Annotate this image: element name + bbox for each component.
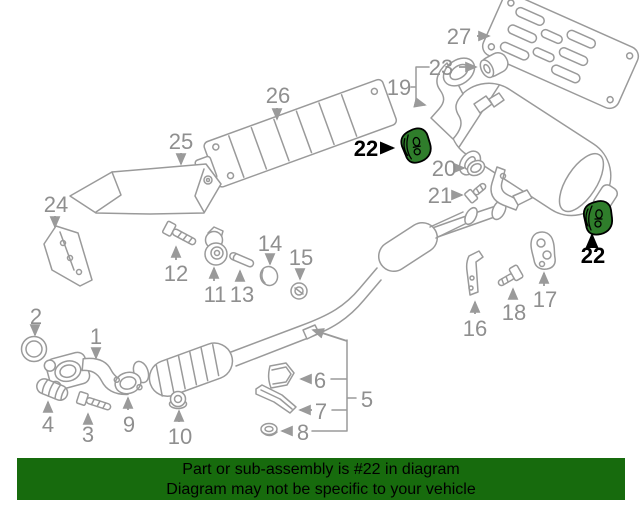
callout-16: 16 — [463, 316, 487, 341]
callout-19: 19 — [387, 75, 411, 100]
pin-13 — [229, 252, 255, 268]
callout-6: 6 — [314, 368, 326, 393]
grommet-15 — [291, 283, 307, 299]
callout-9: 9 — [123, 412, 135, 437]
nut-10 — [170, 392, 187, 409]
parts-diagram-page: 1234567891011121314151617181920212222232… — [0, 0, 640, 512]
callout-22-left: 22 — [354, 136, 378, 161]
callout-18: 18 — [502, 300, 526, 325]
callout-17: 17 — [533, 287, 557, 312]
callout-2: 2 — [30, 304, 42, 329]
bolt-12 — [162, 221, 198, 248]
callout-24: 24 — [44, 192, 68, 217]
callout-4: 4 — [42, 412, 54, 437]
callout-26: 26 — [266, 83, 290, 108]
callout-12: 12 — [164, 261, 188, 286]
callout-22-right: 22 — [581, 243, 605, 268]
callout-21: 21 — [428, 183, 452, 208]
bolt-18 — [495, 265, 524, 290]
heat-shield-24 — [44, 226, 92, 286]
bracket-16 — [467, 251, 483, 295]
callout-10: 10 — [168, 424, 192, 449]
callout-5: 5 — [361, 387, 373, 412]
highlight-banner: Part or sub-assembly is #22 in diagram D… — [17, 458, 625, 500]
rubber-hanger-22-left — [399, 127, 433, 165]
bolt-3 — [76, 391, 112, 413]
grommet-8 — [261, 424, 277, 436]
callout-23: 23 — [429, 55, 453, 80]
grommet-14 — [258, 265, 279, 288]
catalytic-converter — [144, 338, 237, 401]
banner-line1: Part or sub-assembly is #22 in diagram — [17, 460, 625, 480]
banner-line2: Diagram may not be specific to your vehi… — [17, 480, 625, 500]
bracket-6 — [269, 363, 294, 388]
hanger-bracket-11 — [205, 227, 227, 265]
rubber-hanger-22-right — [584, 201, 612, 235]
group-bracket-19 — [411, 67, 429, 105]
callout-20: 20 — [432, 156, 456, 181]
bracket-7 — [256, 385, 296, 413]
callout-11: 11 — [204, 282, 227, 307]
callout-27: 27 — [447, 24, 471, 49]
gasket-ring-2 — [22, 337, 47, 362]
heat-shield-25 — [70, 164, 221, 214]
callout-14: 14 — [258, 231, 282, 256]
callout-8: 8 — [297, 420, 309, 445]
callout-15: 15 — [289, 245, 313, 270]
callout-7: 7 — [315, 399, 327, 424]
callout-3: 3 — [82, 422, 94, 447]
callout-25: 25 — [169, 129, 193, 154]
exhaust-diagram: 1234567891011121314151617181920212222232… — [0, 0, 640, 512]
callout-13: 13 — [230, 282, 254, 307]
callout-1: 1 — [90, 324, 102, 349]
hanger-bracket-17 — [531, 232, 555, 269]
bolt-21 — [464, 180, 489, 203]
